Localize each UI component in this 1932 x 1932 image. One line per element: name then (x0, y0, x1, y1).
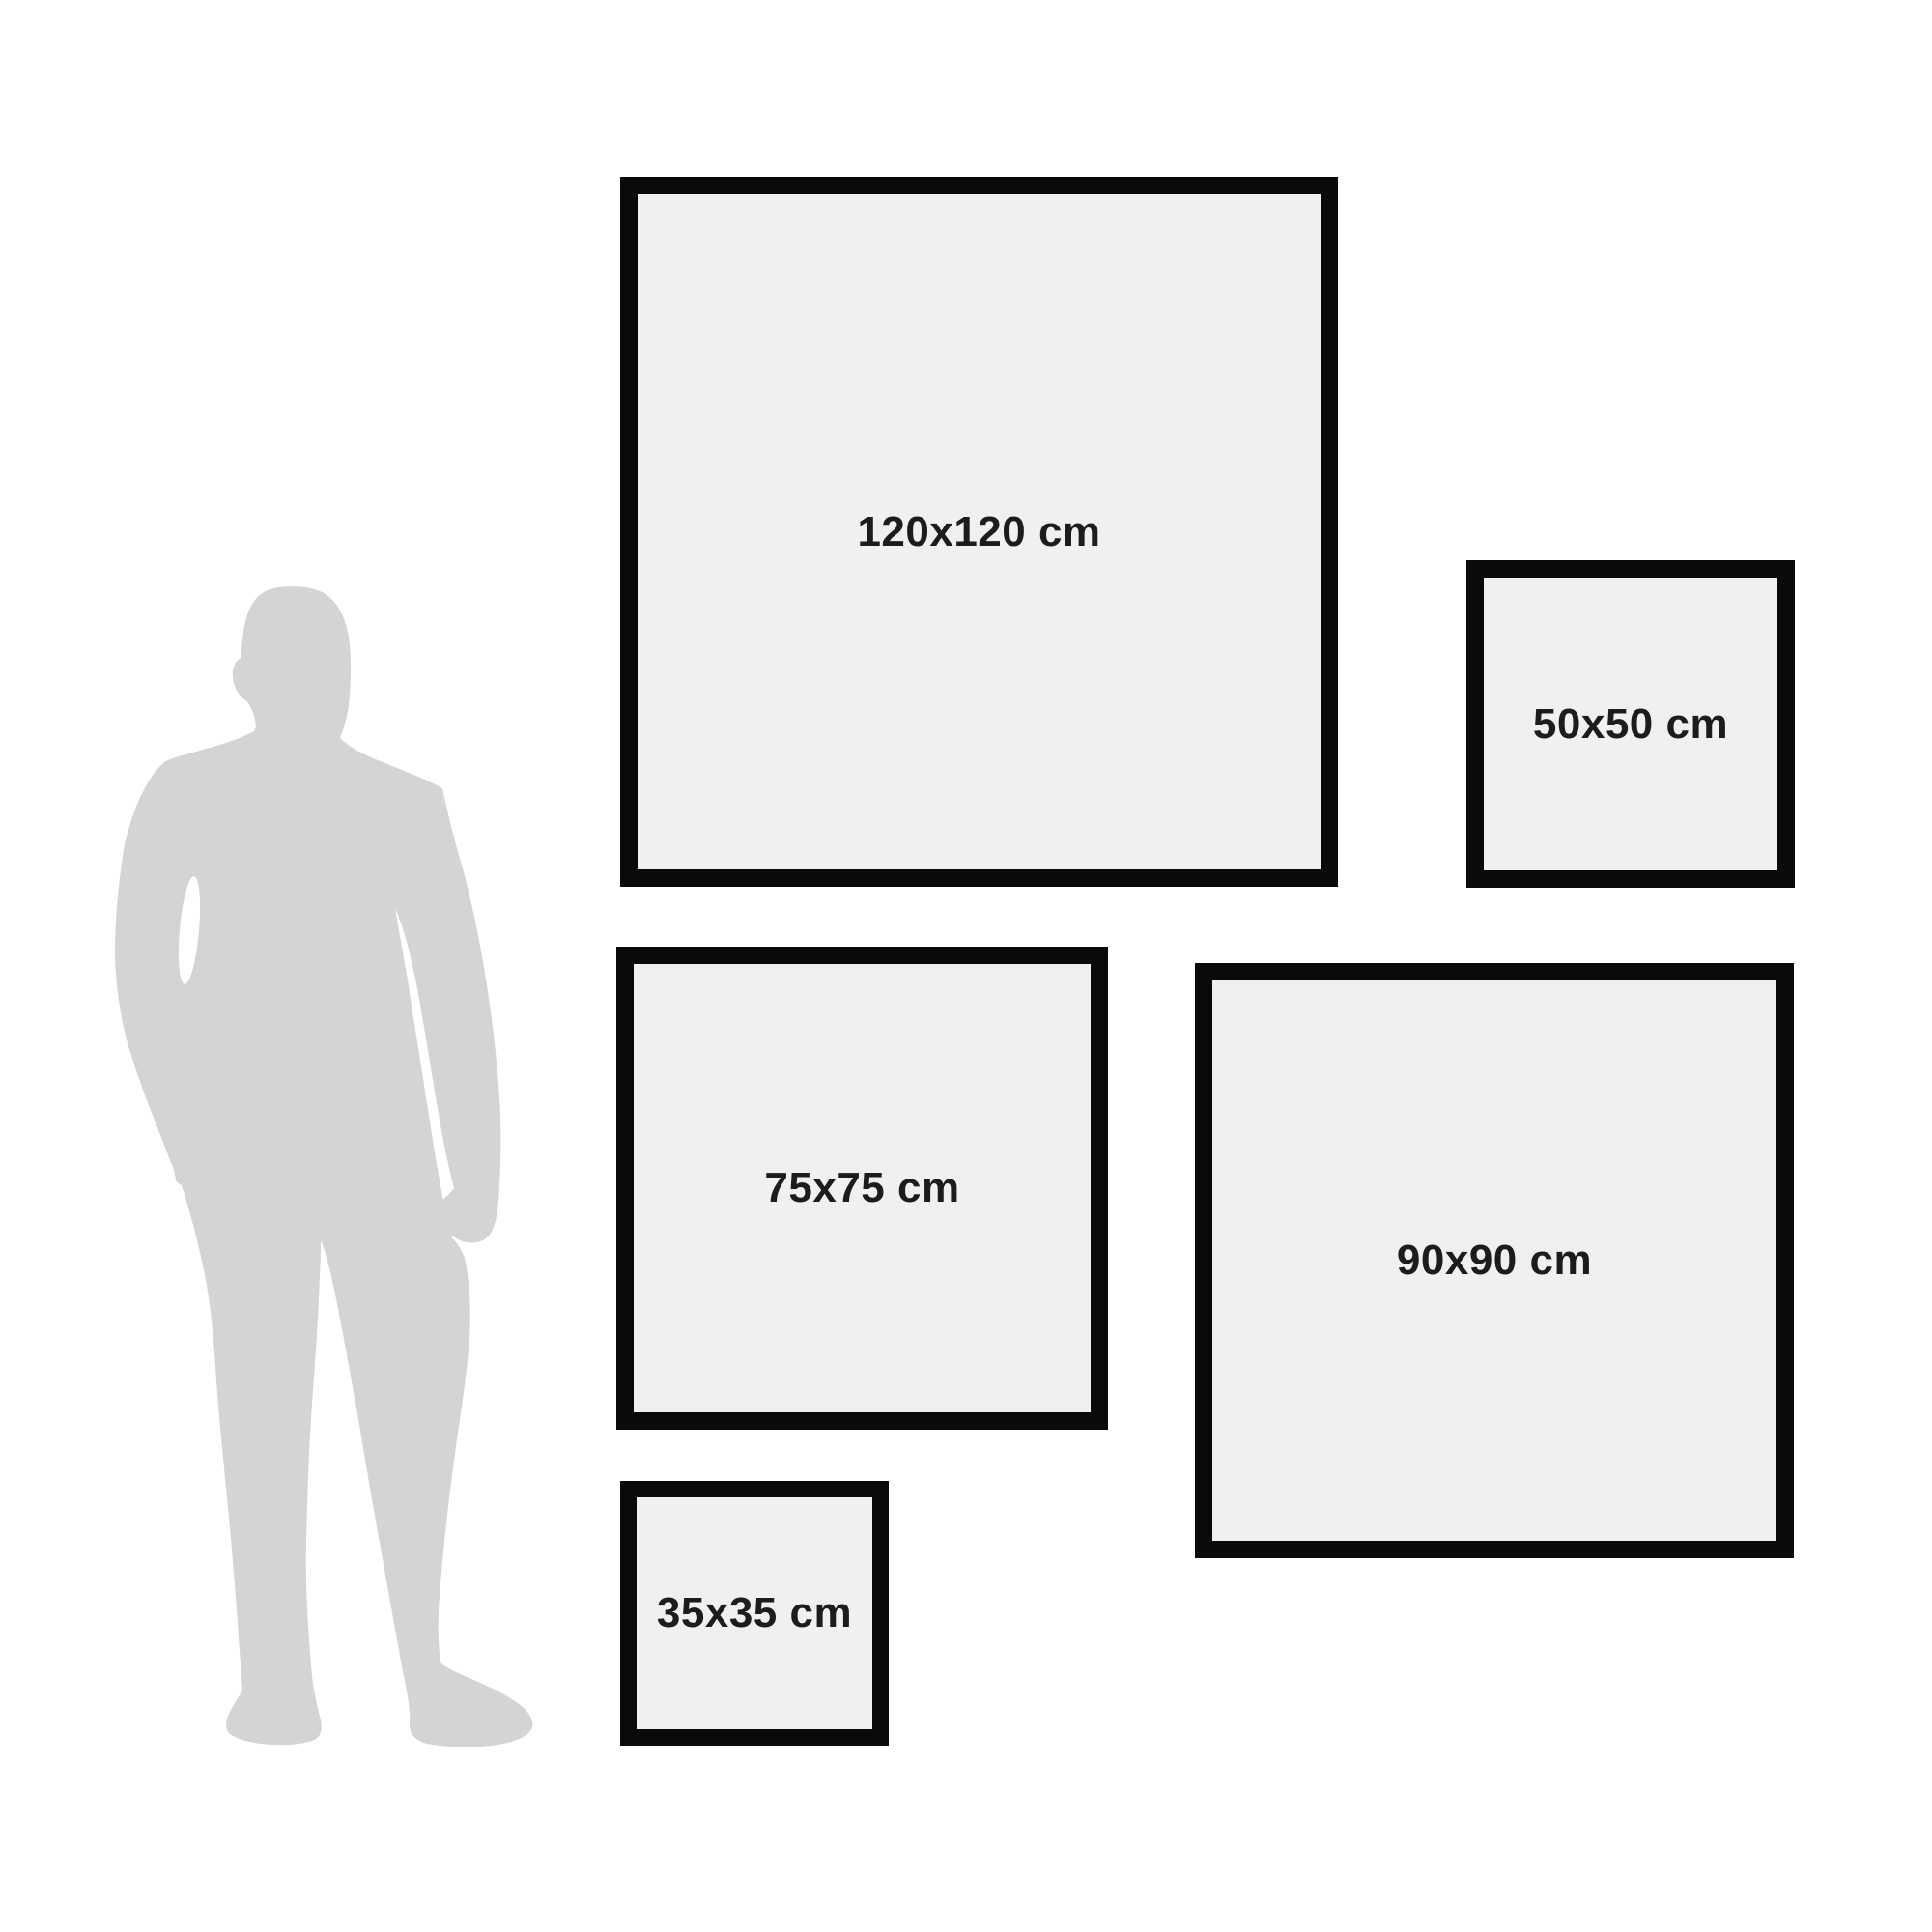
man-silhouette-shape (115, 586, 532, 1747)
frame-50x50: 50x50 cm (1466, 560, 1795, 888)
size-comparison-diagram: 120x120 cm 50x50 cm 75x75 cm 90x90 cm 35… (0, 0, 1932, 1932)
size-label-75x75: 75x75 cm (764, 1164, 959, 1212)
size-label-90x90: 90x90 cm (1397, 1236, 1592, 1285)
frame-120x120: 120x120 cm (620, 177, 1338, 887)
frame-35x35: 35x35 cm (620, 1481, 889, 1746)
size-label-35x35: 35x35 cm (657, 1589, 852, 1637)
size-label-50x50: 50x50 cm (1533, 700, 1728, 749)
frame-90x90: 90x90 cm (1195, 963, 1794, 1558)
frame-75x75: 75x75 cm (616, 947, 1108, 1430)
size-label-120x120: 120x120 cm (857, 508, 1100, 556)
